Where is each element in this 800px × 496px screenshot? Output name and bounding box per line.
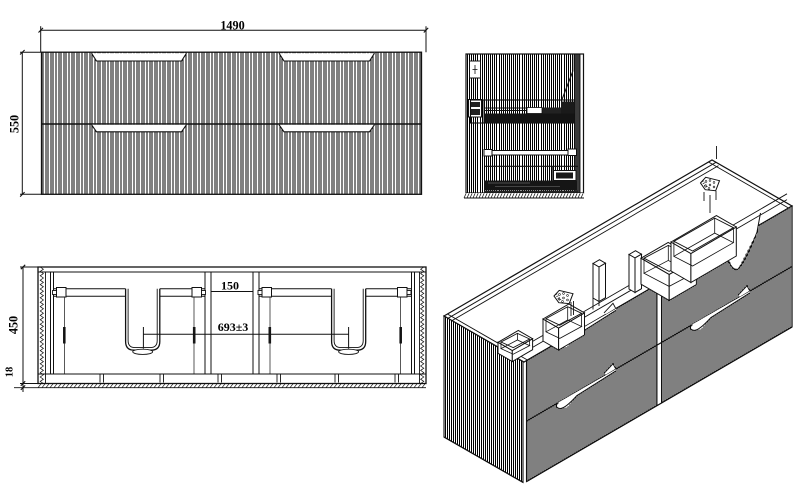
svg-text:150: 150 [221, 279, 239, 293]
svg-text:693±3: 693±3 [218, 320, 249, 334]
svg-text:1490: 1490 [220, 18, 244, 32]
svg-text:550: 550 [7, 115, 21, 133]
svg-text:450: 450 [7, 316, 21, 334]
svg-text:18: 18 [5, 367, 16, 378]
